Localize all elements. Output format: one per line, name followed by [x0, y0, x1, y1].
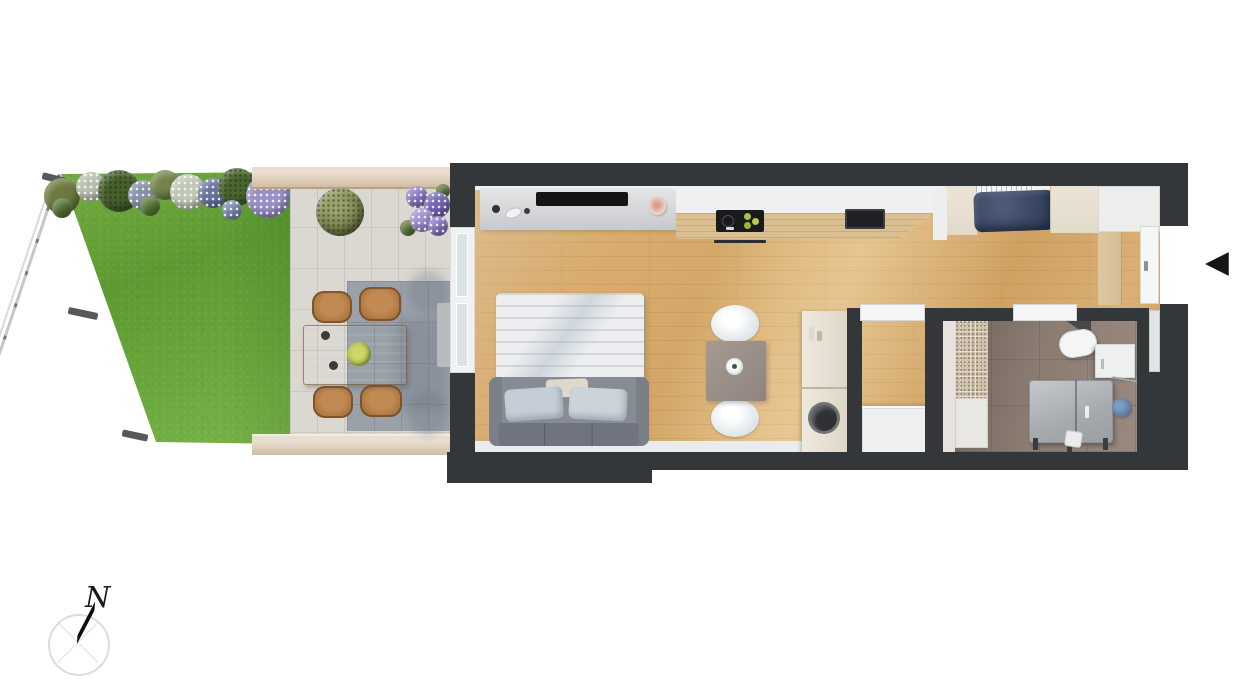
sofa: [489, 377, 649, 446]
bathroom-right-wall: [1137, 308, 1149, 452]
sofa-bed-mattress: [496, 293, 644, 389]
wardrobe-right: [1050, 186, 1098, 233]
sofa-seat-cushions: [499, 423, 639, 446]
bathroom-wall-finish: [943, 313, 955, 452]
white-cabinet-end: [933, 188, 947, 240]
partition-bathroom-top-left: [943, 308, 1015, 321]
wall-bottom: [450, 452, 1188, 470]
candle: [648, 197, 666, 215]
burner-mark: [722, 215, 734, 227]
vanity-handle: [1101, 359, 1104, 369]
fence-gate-middle: [68, 307, 99, 320]
outdoor-chair: [313, 386, 353, 418]
storage-cabinet: [862, 406, 926, 454]
towel: [1112, 398, 1131, 417]
kitchen-sink: [845, 209, 885, 229]
apple: [744, 213, 751, 220]
tub-leg: [1033, 438, 1038, 450]
nook-bed: [973, 190, 1054, 233]
tall-appliance-cabinet: [802, 311, 848, 453]
shaft-niche: [1149, 310, 1160, 372]
wall-top: [450, 163, 1188, 186]
pillow: [504, 386, 564, 422]
dining-table: [706, 341, 766, 401]
glass-pane: [456, 303, 468, 367]
wall-left-upper: [450, 163, 475, 227]
outdoor-dining-table: [303, 325, 407, 385]
serving-bowl: [347, 342, 371, 366]
toilet-brush: [1065, 431, 1082, 447]
boxwood-shrub: [316, 188, 364, 236]
kitchen-counter: [676, 189, 938, 239]
shower-tray: [955, 398, 988, 448]
apple: [744, 222, 751, 229]
table-decor: [321, 331, 330, 340]
shrub: [52, 198, 72, 218]
oven-handle: [714, 240, 766, 243]
blue-flowers: [222, 200, 242, 220]
control-knob: [726, 227, 734, 230]
table-bowl-item: [732, 364, 737, 369]
partition-bathroom-top-right: [1077, 308, 1139, 321]
shower-mosaic: [955, 316, 988, 398]
partition-storage-left: [847, 308, 862, 454]
bottle: [809, 327, 814, 341]
entrance-door: [1140, 226, 1159, 304]
planter-bottom: [252, 434, 456, 455]
partition-storage-right: [925, 308, 943, 454]
tv-sideboard: [480, 189, 677, 230]
tub-leg: [1103, 438, 1108, 450]
compass: N: [30, 570, 140, 690]
wall-right-lower: [1160, 304, 1188, 470]
outdoor-chair: [359, 287, 401, 321]
vanity: [1095, 344, 1135, 378]
bottle: [817, 331, 822, 341]
washing-machine-door: [811, 405, 837, 431]
glass-pane: [456, 233, 468, 297]
entry-wood-cabinet: [1098, 232, 1122, 305]
table-decor: [329, 361, 338, 370]
wall-right-upper: [1160, 163, 1188, 226]
fence-gate-bottom: [122, 429, 149, 441]
pillow: [568, 387, 628, 422]
outdoor-chair: [312, 291, 352, 323]
decor-dish: [505, 207, 522, 220]
door-handle: [1144, 261, 1148, 271]
chair-shadow: [408, 392, 448, 436]
tub-handle: [1085, 406, 1089, 418]
terrace-glass-door: [450, 227, 475, 373]
entrance-arrow-icon: ◀: [1205, 247, 1229, 277]
tv: [536, 192, 628, 206]
hydrangea-bloom: [428, 216, 448, 236]
shaft-wall: [1149, 372, 1160, 452]
cooktop: [716, 210, 764, 232]
decor-bowl: [524, 208, 530, 214]
outdoor-chair: [360, 385, 402, 417]
hydrangea: [400, 184, 452, 242]
dining-chair: [711, 305, 759, 343]
shrub: [140, 196, 160, 216]
dining-chair: [711, 399, 759, 437]
floor-plan-canvas: ◀ N: [0, 0, 1236, 700]
bathroom-door: [1013, 304, 1077, 321]
apple: [752, 218, 759, 225]
storage-door: [860, 304, 925, 321]
compass-north-label: N: [85, 580, 110, 614]
cabinet-divider: [802, 387, 848, 389]
decor-bowl: [492, 205, 500, 213]
